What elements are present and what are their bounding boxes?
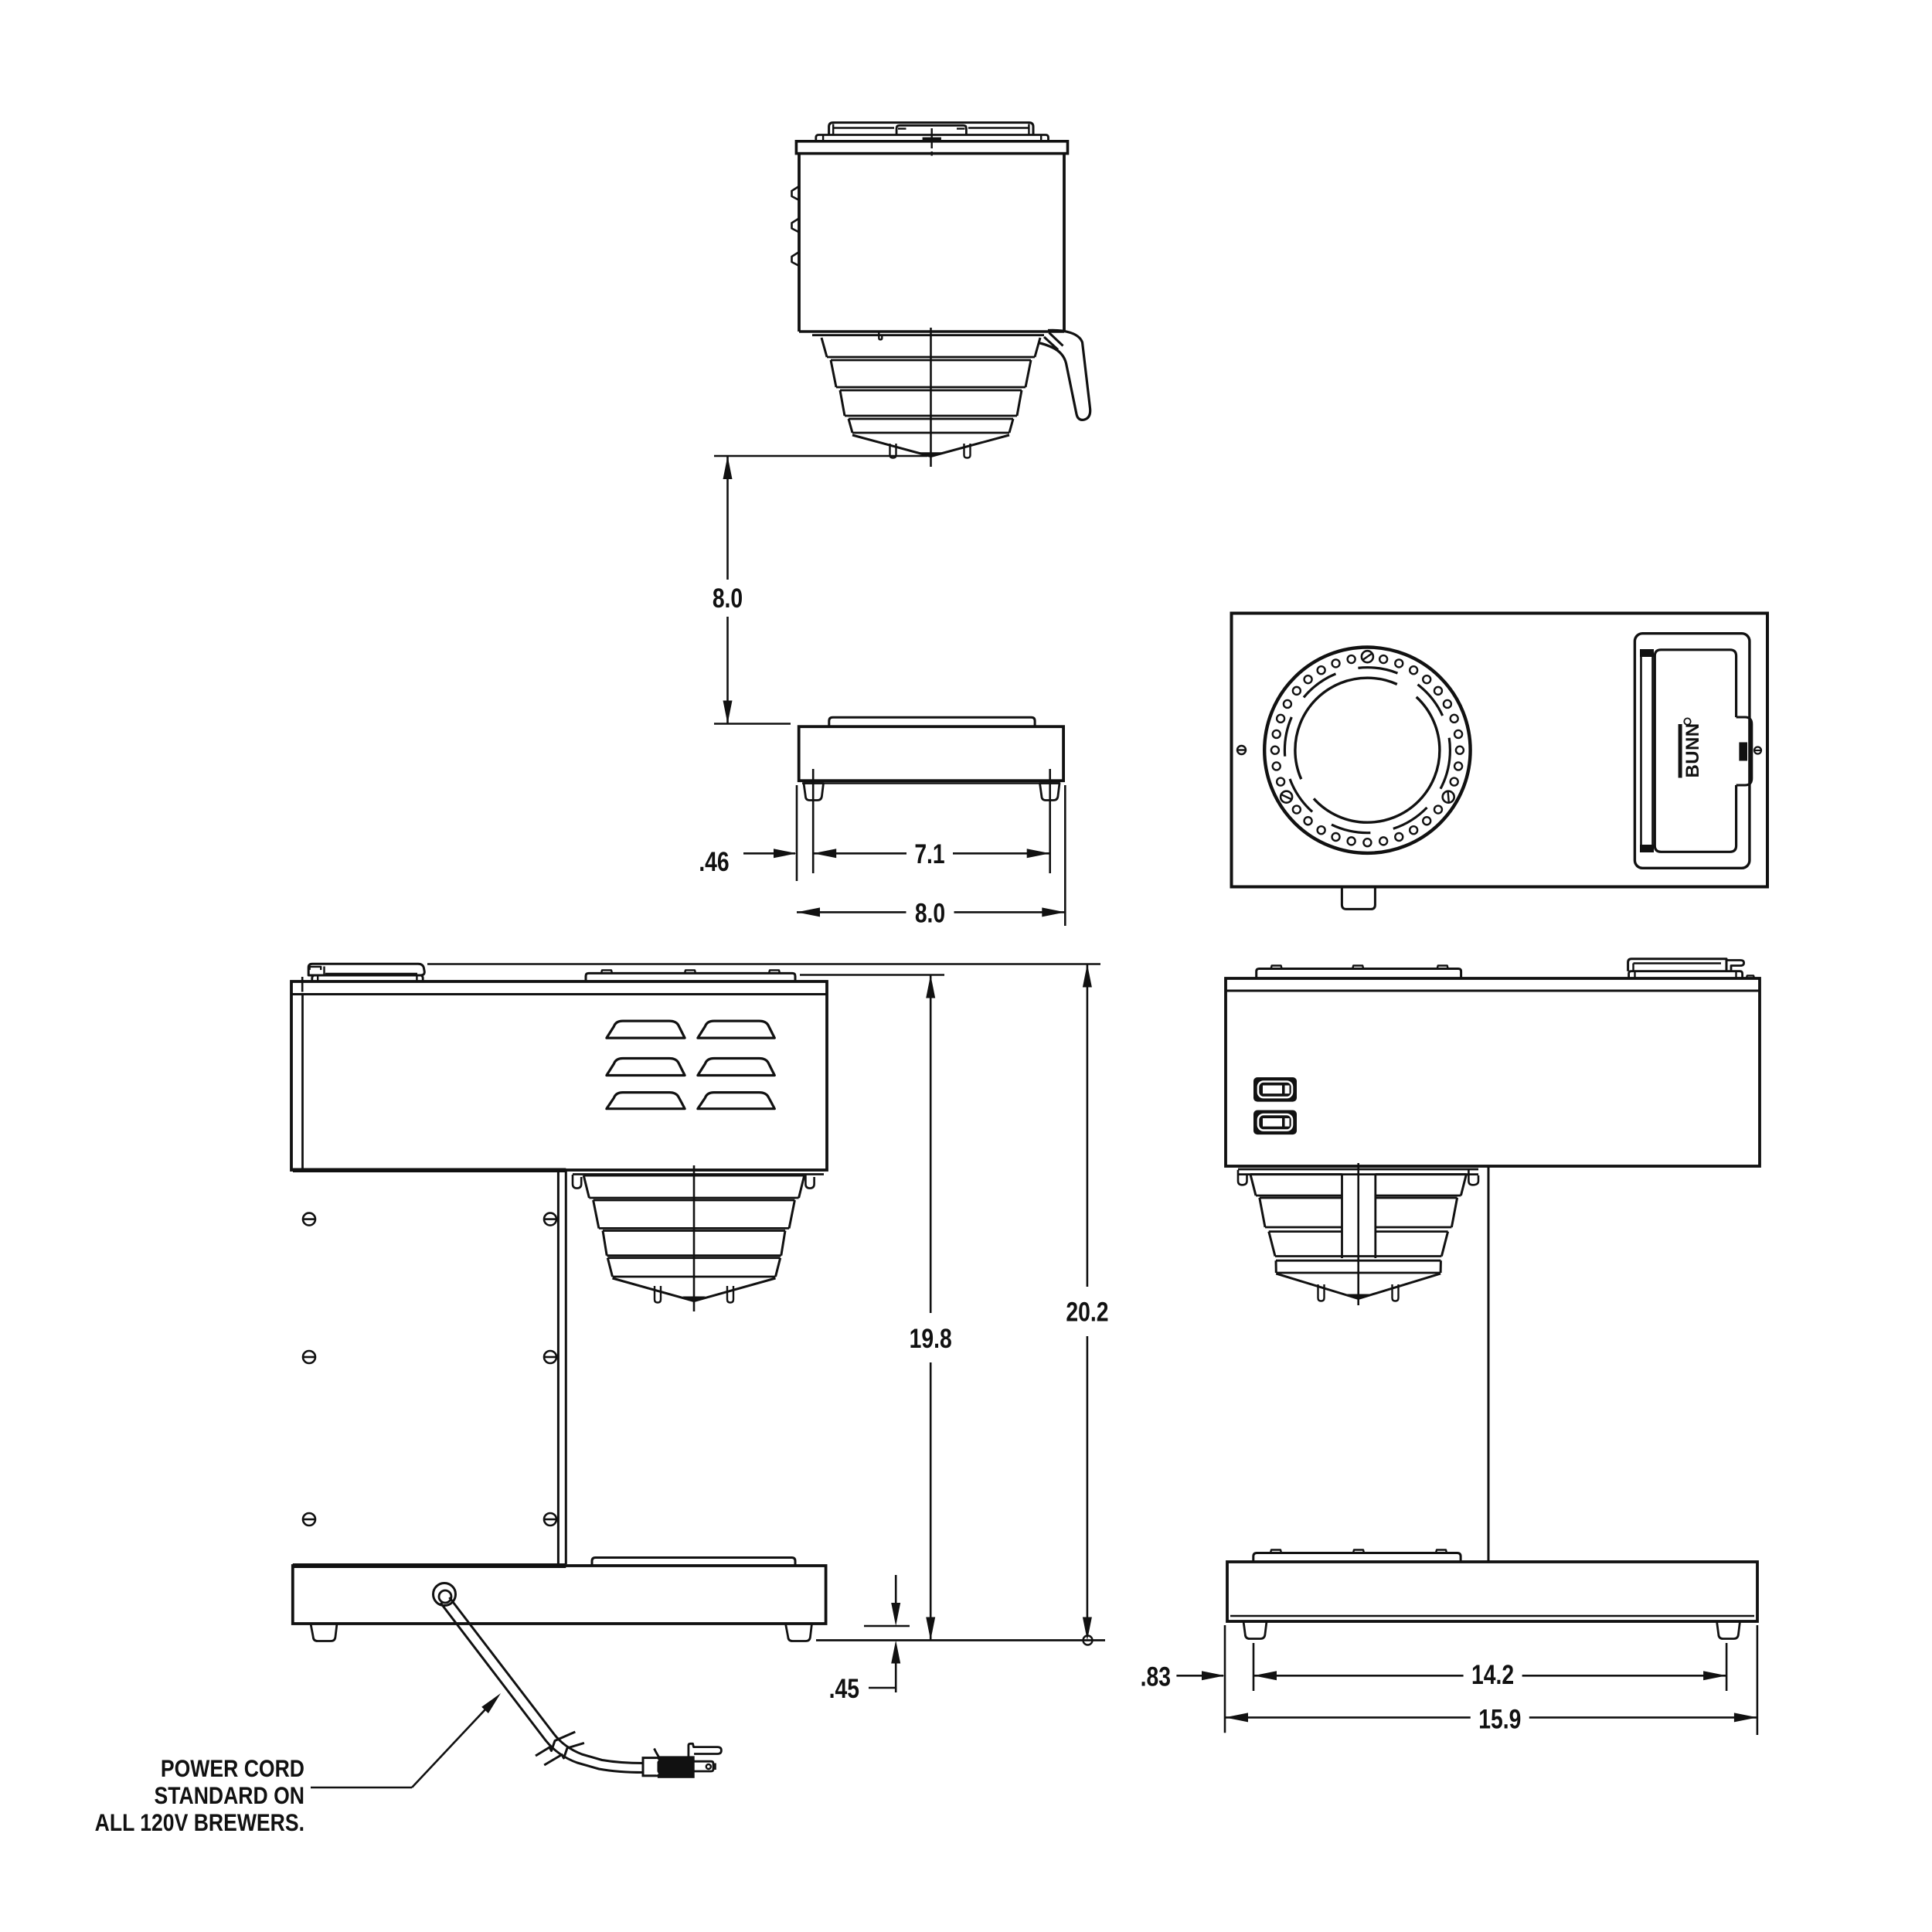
svg-text:BUNN: BUNN [1682,723,1703,778]
svg-text:8.0: 8.0 [713,583,743,614]
svg-text:STANDARD ON: STANDARD ON [154,1783,304,1809]
svg-text:.45: .45 [829,1673,859,1704]
svg-text:7.1: 7.1 [914,838,944,869]
svg-text:ALL 120V BREWERS.: ALL 120V BREWERS. [95,1810,304,1836]
svg-text:.46: .46 [699,846,729,877]
svg-text:8.0: 8.0 [915,897,945,928]
svg-text:POWER CORD: POWER CORD [161,1756,304,1782]
svg-text:19.8: 19.8 [910,1323,952,1354]
svg-text:.83: .83 [1141,1661,1171,1692]
svg-text:20.2: 20.2 [1066,1296,1108,1327]
svg-text:14.2: 14.2 [1471,1659,1514,1690]
svg-text:15.9: 15.9 [1478,1703,1521,1734]
